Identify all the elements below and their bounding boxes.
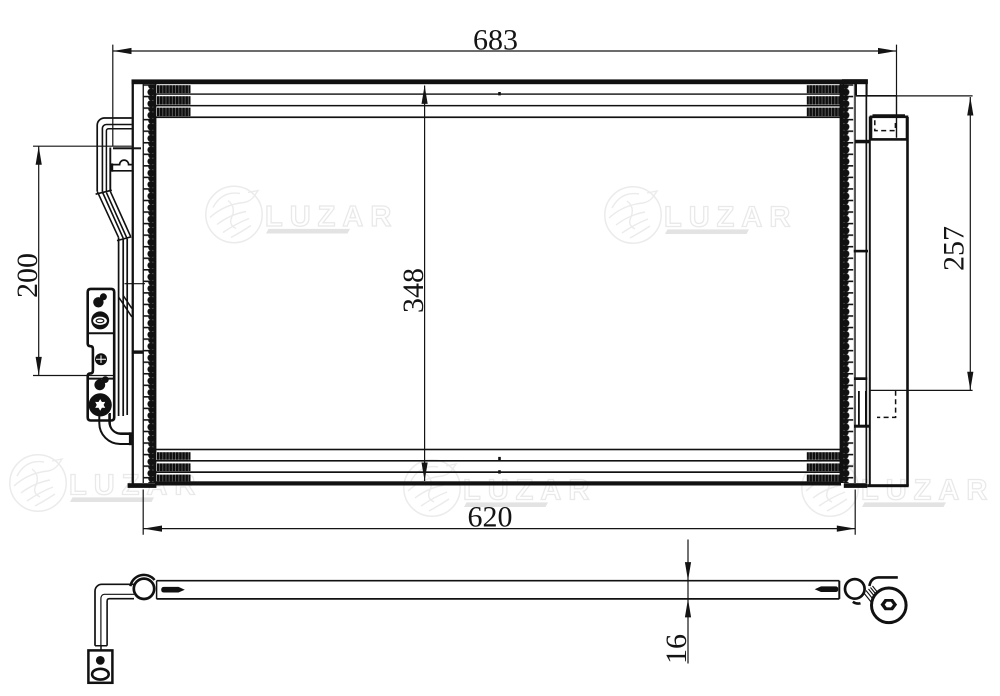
svg-text:200: 200 xyxy=(11,253,44,298)
svg-text:348: 348 xyxy=(397,268,430,313)
svg-text:16: 16 xyxy=(660,634,693,664)
svg-text:257: 257 xyxy=(938,226,971,271)
svg-text:683: 683 xyxy=(473,24,518,57)
svg-text:620: 620 xyxy=(468,501,513,534)
